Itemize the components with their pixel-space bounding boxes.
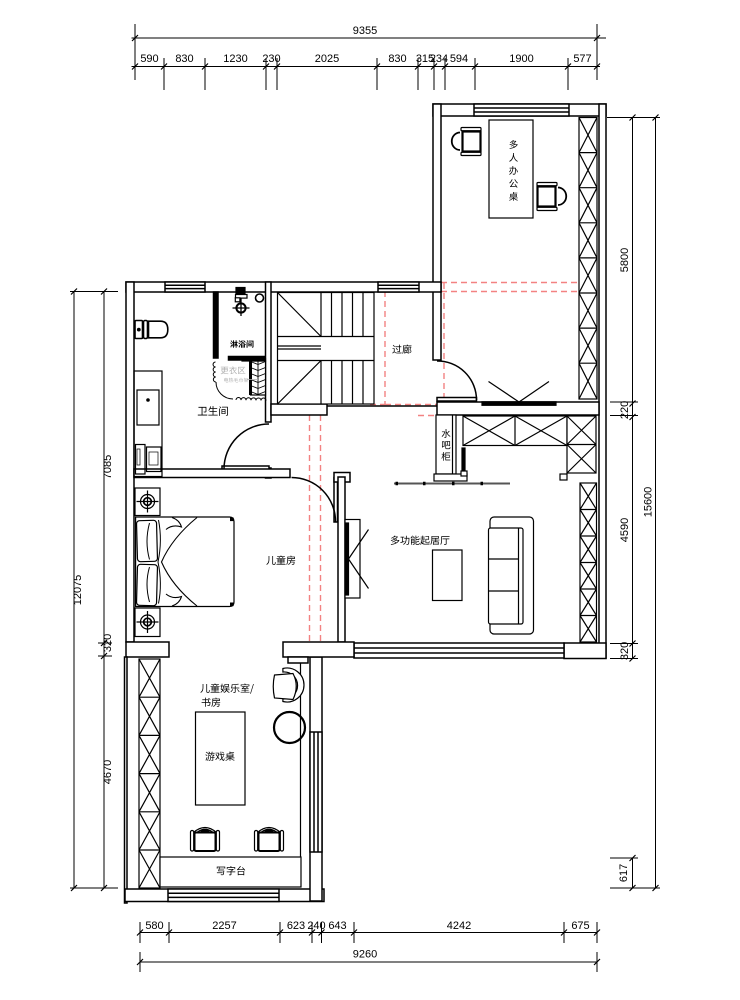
svg-text:1900: 1900 xyxy=(509,53,533,65)
svg-text:9355: 9355 xyxy=(353,25,377,37)
svg-text:580: 580 xyxy=(145,920,163,932)
svg-text:230: 230 xyxy=(262,53,280,65)
svg-text:9260: 9260 xyxy=(353,949,377,961)
svg-text:234: 234 xyxy=(430,53,448,65)
svg-text:830: 830 xyxy=(175,53,193,65)
svg-text:12075: 12075 xyxy=(72,575,84,606)
svg-text:2257: 2257 xyxy=(212,920,236,932)
svg-text:577: 577 xyxy=(573,53,591,65)
svg-text:15600: 15600 xyxy=(643,487,655,518)
svg-text:4242: 4242 xyxy=(447,920,471,932)
svg-text:2025: 2025 xyxy=(315,53,339,65)
svg-text:7085: 7085 xyxy=(102,455,114,479)
svg-text:830: 830 xyxy=(388,53,406,65)
svg-text:320: 320 xyxy=(619,642,631,660)
svg-text:220: 220 xyxy=(619,401,631,419)
svg-text:4670: 4670 xyxy=(102,760,114,784)
svg-text:617: 617 xyxy=(618,864,630,882)
svg-text:240: 240 xyxy=(307,920,325,932)
svg-text:594: 594 xyxy=(450,53,468,65)
svg-text:4590: 4590 xyxy=(619,518,631,542)
svg-text:643: 643 xyxy=(328,920,346,932)
svg-text:623: 623 xyxy=(287,920,305,932)
svg-text:5800: 5800 xyxy=(619,248,631,272)
svg-text:1230: 1230 xyxy=(223,53,247,65)
svg-text:590: 590 xyxy=(140,53,158,65)
svg-text:320: 320 xyxy=(102,634,114,652)
svg-text:675: 675 xyxy=(571,920,589,932)
